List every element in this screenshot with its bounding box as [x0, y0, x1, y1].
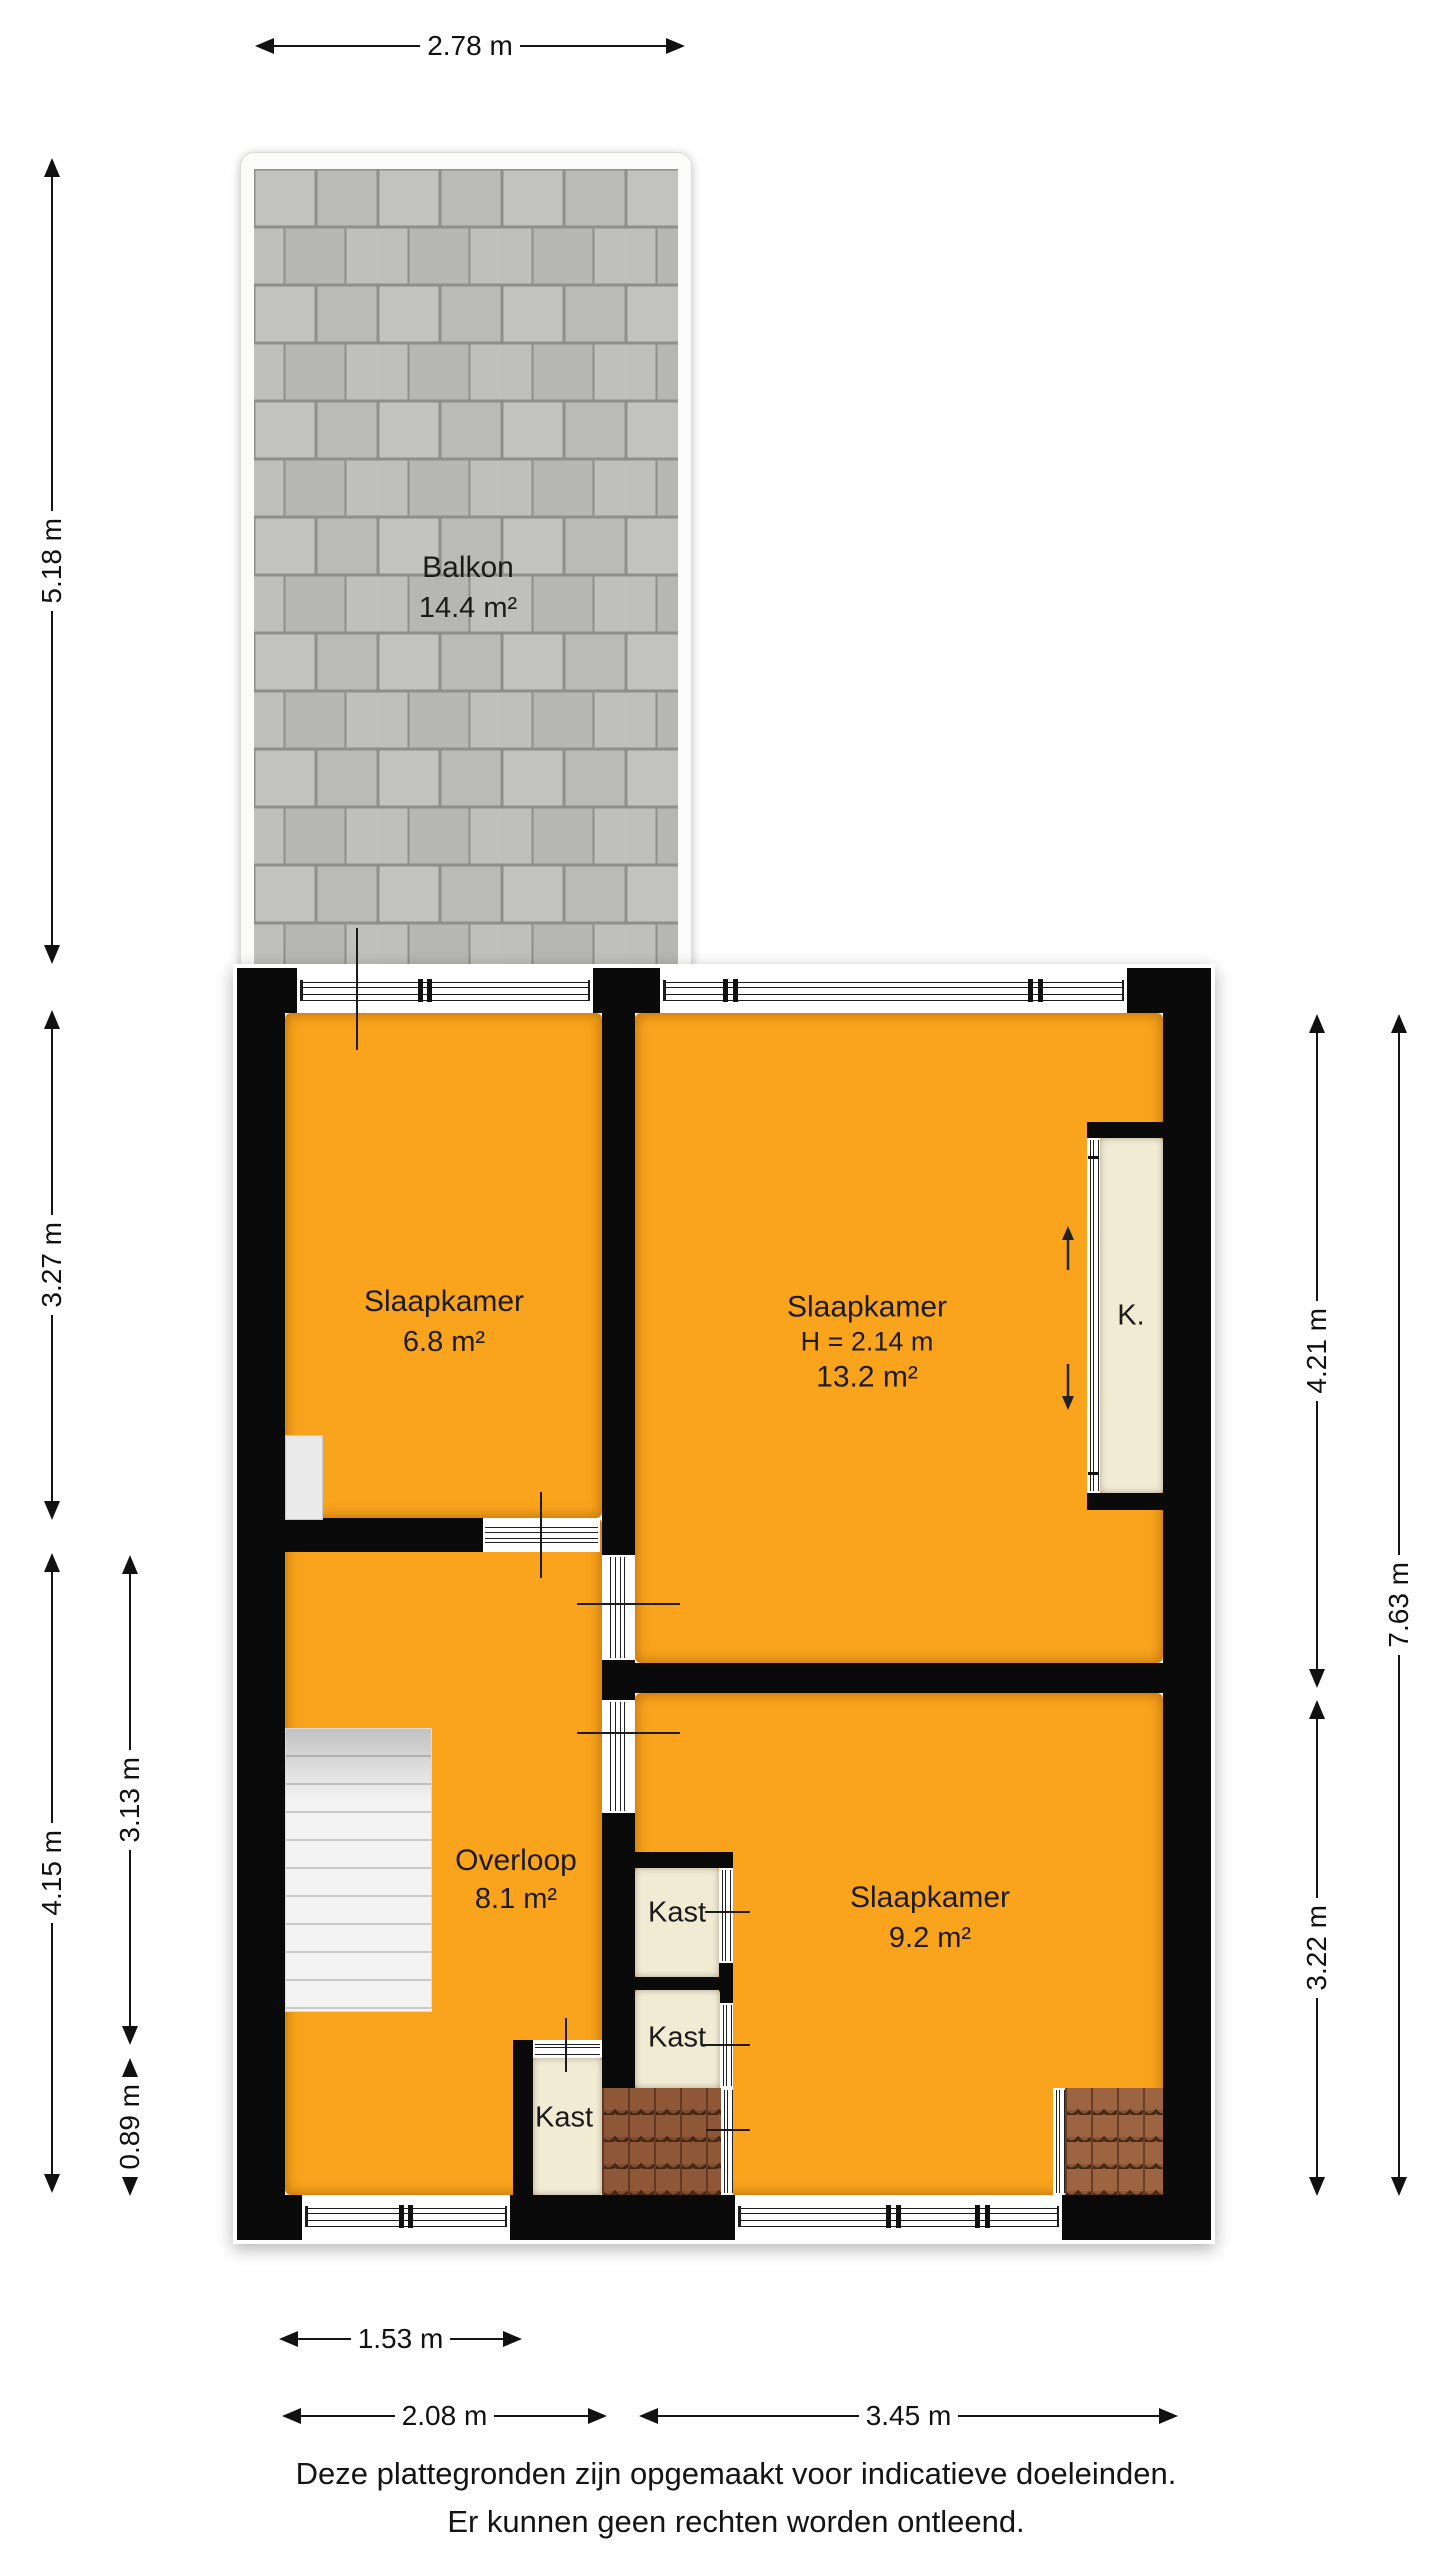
- kcloset-label: K.: [1117, 1298, 1144, 1335]
- wall-interior-vertical-upper: [602, 1013, 635, 1555]
- dimension-bedroom-large-height: 4.21 m: [1295, 1014, 1339, 1688]
- window-mullion: [886, 2205, 891, 2228]
- dimension-line: [51, 1572, 53, 1823]
- door-end-cap: [1088, 1156, 1099, 1159]
- floor-bedroom-left: [285, 1013, 602, 1518]
- door-leaf-line: [540, 1492, 542, 1578]
- room-area: 8.1 m²: [455, 1880, 577, 1918]
- arrowhead-left-icon: [255, 38, 274, 54]
- room-area: 9.2 m²: [850, 1918, 1010, 1958]
- dimension-line: [958, 2415, 1159, 2417]
- rooftiles-right: [1065, 2088, 1163, 2195]
- closet3-door-line: [565, 2018, 567, 2072]
- window-glazing: [300, 982, 590, 1001]
- wall-left: [237, 968, 285, 2240]
- window-mullion: [896, 2205, 901, 2228]
- door-leader-line: [577, 1732, 680, 1734]
- arrowhead-right-icon: [503, 2331, 522, 2347]
- dimension-line: [129, 1574, 131, 1750]
- landing-label: Overloop 8.1 m²: [455, 1842, 577, 1918]
- dimension-line: [1398, 1033, 1400, 1555]
- stairs: [285, 1728, 432, 2012]
- dimension-value: 3.27 m: [36, 1215, 68, 1315]
- kneewall-lines: [724, 2090, 733, 2193]
- balcony-name: Balkon: [419, 548, 517, 588]
- window-glazing: [305, 2208, 507, 2227]
- dimension-right-total-height: 7.63 m: [1377, 1014, 1421, 2196]
- kneewall-right: [1053, 2088, 1065, 2195]
- arrowhead-right-icon: [1159, 2408, 1178, 2424]
- arrowhead-left-icon: [282, 2408, 301, 2424]
- room-area: 6.8 m²: [364, 1322, 524, 1363]
- arrowhead-up-icon: [1391, 1014, 1407, 1033]
- window-frame-mark: [505, 2206, 508, 2227]
- dimension-value: 2.78 m: [420, 30, 520, 62]
- closet2-label: Kast: [648, 2020, 706, 2057]
- window-mullion: [1038, 979, 1043, 1002]
- dimension-value: 3.22 m: [1301, 1898, 1333, 1998]
- arrowhead-down-icon: [1391, 2177, 1407, 2196]
- window-mullion: [723, 979, 728, 1002]
- room-height: H = 2.14 m: [787, 1325, 947, 1360]
- arrowhead-up-icon: [44, 1553, 60, 1572]
- dimension-line: [1316, 1401, 1318, 1669]
- door-lines: [610, 1557, 625, 1658]
- wall-closet3-left: [513, 2040, 533, 2195]
- arrowhead-up-icon: [122, 1555, 138, 1574]
- window-bedroom-left-top: [297, 968, 593, 1013]
- dimension-line: [1398, 1655, 1400, 2177]
- arrowhead-up-icon: [44, 1010, 60, 1029]
- bedroom-right-label: Slaapkamer 9.2 m²: [850, 1878, 1010, 1958]
- closet3-label: Kast: [535, 2100, 593, 2137]
- dimension-bedroom-left-height: 3.27 m: [30, 1010, 74, 1520]
- rooftiles-leader-line: [706, 2129, 750, 2131]
- room-name: Slaapkamer: [364, 1281, 524, 1322]
- arrowhead-right-icon: [666, 38, 685, 54]
- door-direction-up-icon: [1060, 1226, 1076, 1270]
- arrowhead-left-icon: [279, 2331, 298, 2347]
- closet2-leader-line: [703, 2044, 750, 2046]
- window-frame-mark: [1122, 980, 1125, 1001]
- dimension-line: [51, 177, 53, 511]
- closet1-leader-line: [705, 1911, 750, 1913]
- wall-interior-vertical-mid: [602, 1660, 635, 1700]
- wall-right: [1163, 968, 1211, 2240]
- dimension-line: [301, 2415, 395, 2417]
- wall-kcloset-top: [1087, 1122, 1163, 1138]
- window-bedroom-right-bottom: [735, 2195, 1062, 2240]
- rooftiles-left: [602, 2088, 733, 2195]
- door-lines: [610, 1702, 625, 1811]
- door-end-cap: [1088, 1472, 1099, 1475]
- dimension-line: [51, 1315, 53, 1501]
- dimension-line: [450, 2338, 503, 2340]
- arrowhead-down-icon: [44, 1501, 60, 1520]
- window-mullion: [733, 979, 738, 1002]
- arrowhead-down-icon: [1309, 1669, 1325, 1688]
- chimney-niche: [285, 1435, 323, 1520]
- floorplan-page: Balkon 14.4 m²: [0, 0, 1440, 2560]
- arrowhead-right-icon: [588, 2408, 607, 2424]
- wall-closet-divider: [628, 1977, 720, 1990]
- dimension-closet3-height: 0.89 m: [108, 2058, 152, 2195]
- door-bedroom-large: [602, 1555, 635, 1660]
- room-name: Slaapkamer: [787, 1290, 947, 1325]
- dimension-line: [494, 2415, 588, 2417]
- dimension-line: [274, 45, 420, 47]
- dimension-value: 4.21 m: [1301, 1301, 1333, 1401]
- window-bedroom-large-top: [660, 968, 1127, 1013]
- dimension-line: [658, 2415, 859, 2417]
- wall-kcloset-bottom: [1087, 1493, 1163, 1510]
- disclaimer: Deze plattegronden zijn opgemaakt voor i…: [0, 2450, 1440, 2546]
- dimension-landing-height: 4.15 m: [30, 1553, 74, 2193]
- disclaimer-line-1: Deze plattegronden zijn opgemaakt voor i…: [32, 2450, 1440, 2498]
- dimension-line: [51, 1029, 53, 1215]
- bedroom-large-label: Slaapkamer H = 2.14 m 13.2 m²: [787, 1290, 947, 1395]
- window-mullion: [427, 979, 432, 1002]
- dimension-line: [1316, 1033, 1318, 1301]
- room-name: Slaapkamer: [850, 1878, 1010, 1918]
- dimension-right-width: 3.45 m: [639, 2398, 1178, 2434]
- wall-closet1-top: [628, 1852, 733, 1868]
- arrowhead-down-icon: [44, 945, 60, 964]
- window-frame-mark: [305, 2206, 308, 2227]
- room-name: Overloop: [455, 1842, 577, 1880]
- dimension-bedroom-right-height: 3.22 m: [1295, 1700, 1339, 2196]
- dimension-line: [1316, 1719, 1318, 1898]
- arrowhead-down-icon: [122, 2177, 138, 2196]
- window-mullion: [1028, 979, 1033, 1002]
- dimension-line: [129, 1850, 131, 2026]
- window-frame-mark: [738, 2206, 741, 2227]
- window-frame-mark: [300, 980, 303, 1001]
- balcony-label: Balkon 14.4 m²: [419, 548, 517, 628]
- wall-closet-stub: [719, 1963, 733, 2003]
- kcloset-sliding-door: [1087, 1138, 1100, 1493]
- room-area: 13.2 m²: [787, 1360, 947, 1395]
- window-mullion: [985, 2205, 990, 2228]
- dimension-value: 3.13 m: [114, 1750, 146, 1850]
- balcony-area: 14.4 m²: [419, 588, 517, 628]
- window-mullion: [408, 2205, 413, 2228]
- dimension-balcony-height: 5.18 m: [30, 158, 74, 964]
- dimension-line: [1316, 1998, 1318, 2177]
- closet3-door: [533, 2040, 602, 2058]
- bedroom-left-label: Slaapkamer 6.8 m²: [364, 1281, 524, 1363]
- window-mullion: [418, 979, 423, 1002]
- window-frame-mark: [1057, 2206, 1060, 2227]
- window-landing-bottom: [302, 2195, 510, 2240]
- wall-bedrooms-right-divider: [635, 1663, 1163, 1693]
- window-mullion: [975, 2205, 980, 2228]
- balcony-door-line: [356, 928, 358, 1050]
- arrowhead-down-icon: [44, 2174, 60, 2193]
- door-lines: [722, 1870, 731, 1961]
- dimension-line: [51, 611, 53, 945]
- dimension-line: [51, 1923, 53, 2174]
- dimension-landing-inner-height: 3.13 m: [108, 1555, 152, 2045]
- dimension-landing-width: 2.08 m: [282, 2398, 607, 2434]
- dimension-value: 5.18 m: [36, 511, 68, 611]
- arrowhead-down-icon: [122, 2026, 138, 2045]
- window-frame-mark: [663, 980, 666, 1001]
- door-bedroom-right: [602, 1700, 635, 1813]
- arrowhead-up-icon: [1309, 1700, 1325, 1719]
- dimension-value: 4.15 m: [36, 1823, 68, 1923]
- door-lines: [535, 2044, 600, 2055]
- dimension-top-width: 2.78 m: [255, 28, 685, 64]
- closet1-label: Kast: [648, 1895, 706, 1932]
- arrowhead-up-icon: [122, 2058, 138, 2077]
- arrowhead-left-icon: [639, 2408, 658, 2424]
- arrowhead-up-icon: [44, 158, 60, 177]
- door-leader-line: [577, 1603, 680, 1605]
- door-direction-down-icon: [1060, 1364, 1076, 1410]
- dimension-value: 7.63 m: [1383, 1555, 1415, 1655]
- dimension-value: 2.08 m: [395, 2400, 495, 2432]
- disclaimer-line-2: Er kunnen geen rechten worden ontleend.: [32, 2498, 1440, 2546]
- dimension-line: [298, 2338, 351, 2340]
- closet1-door: [719, 1868, 733, 1963]
- kneewall-lines: [1056, 2090, 1065, 2193]
- arrowhead-up-icon: [1309, 1014, 1325, 1033]
- window-frame-mark: [588, 980, 591, 1001]
- dimension-value: 1.53 m: [351, 2323, 451, 2355]
- door-lines: [1090, 1140, 1099, 1491]
- window-mullion: [399, 2205, 404, 2228]
- dimension-stairs-width: 1.53 m: [279, 2321, 522, 2357]
- wall-bedroomleft-landing: [237, 1518, 483, 1552]
- dimension-line: [520, 45, 666, 47]
- dimension-value: 3.45 m: [859, 2400, 959, 2432]
- kneewall-left: [721, 2088, 733, 2195]
- arrowhead-down-icon: [1309, 2177, 1325, 2196]
- dimension-value: 0.89 m: [114, 2077, 146, 2177]
